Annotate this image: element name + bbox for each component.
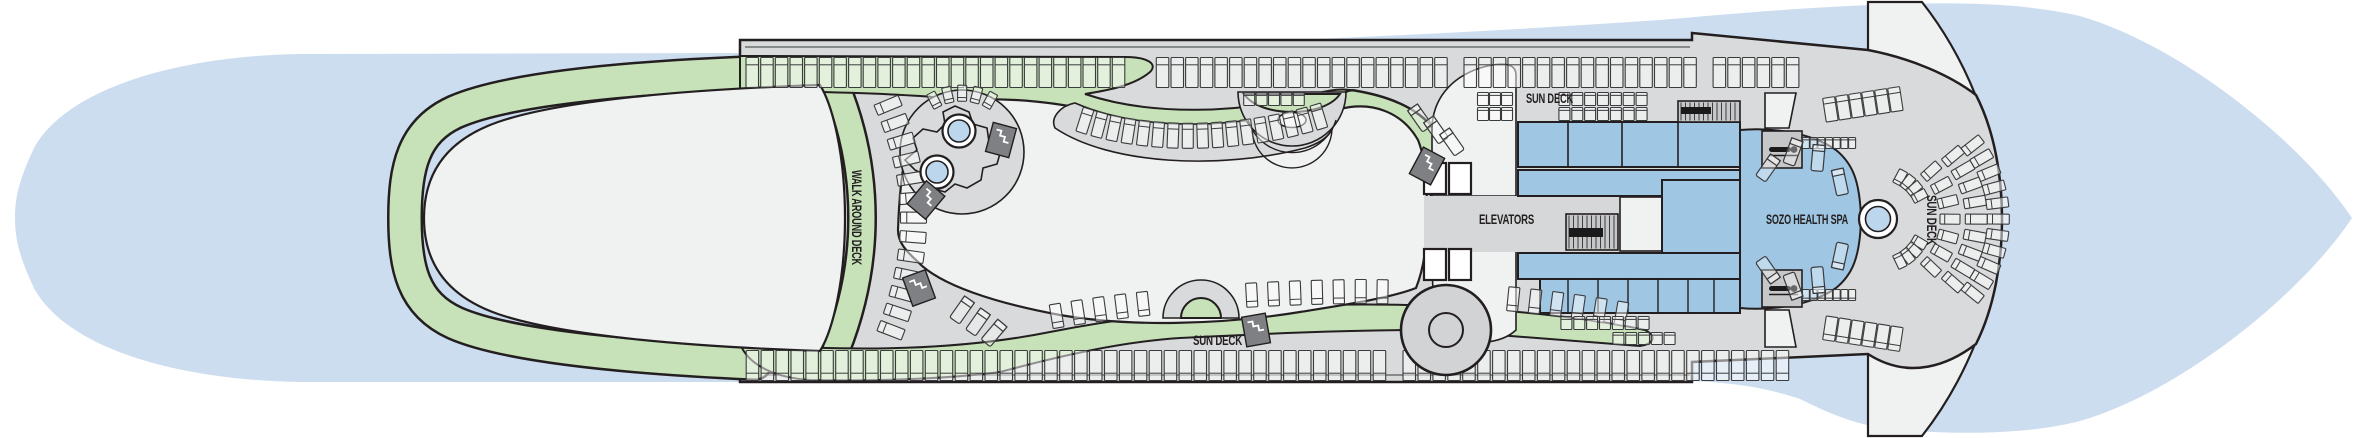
deck-chair (1567, 58, 1580, 88)
deck-chair (1328, 351, 1341, 381)
deck-chair (1211, 122, 1224, 148)
deck-chair (1596, 58, 1609, 88)
deck-chair (1986, 197, 2009, 210)
deck-chair (1642, 351, 1655, 381)
deck-chair (951, 58, 964, 88)
deck-chair (1134, 351, 1147, 381)
deck-chair (1377, 280, 1388, 304)
deck-chair (1528, 289, 1542, 314)
deck-chair (1115, 294, 1129, 319)
deck-chair (1507, 287, 1520, 312)
hot-tub-icon (943, 115, 976, 148)
deck-chair (1244, 58, 1257, 88)
deck-chair (1000, 351, 1013, 381)
deck-chair (1224, 351, 1237, 381)
deck-chair (1561, 317, 1572, 330)
deck-plan-page: SUN DECK SUN DECK ELEVATORS SOZO HEALTH … (0, 0, 2362, 438)
deck-chair (1717, 351, 1730, 381)
deck-chair (1269, 351, 1282, 381)
deck-chair (1284, 351, 1297, 381)
deck-chair (1664, 333, 1675, 345)
label-elevators: ELEVATORS (1479, 212, 1534, 227)
deck-chair (1826, 290, 1833, 301)
deck-chair (1625, 58, 1638, 88)
deck-chair (1687, 351, 1700, 381)
deck-chair (776, 351, 789, 381)
deck-chair (1149, 351, 1162, 381)
deck-chair (1493, 58, 1506, 88)
deck-chair (819, 58, 832, 88)
deck-chair (1391, 58, 1404, 88)
deck-chair (1303, 58, 1316, 88)
deck-chair (1567, 351, 1580, 381)
deck-chair (1239, 351, 1252, 381)
deck-chair (1672, 351, 1685, 381)
deck-chair (836, 351, 849, 381)
deck-chair (1841, 138, 1848, 149)
deck-chair (791, 351, 804, 381)
deck-chair (1508, 351, 1521, 381)
staircase-top (1678, 101, 1740, 122)
deck-chair (1802, 290, 1809, 301)
deck-chair (1684, 58, 1697, 88)
deck-chair (1288, 58, 1301, 88)
deck-chair (1478, 108, 1489, 121)
pool-icon (1859, 200, 1897, 238)
deck-chair (1600, 317, 1611, 330)
deck-chair (1587, 317, 1598, 330)
label-sun-deck-bottom: SUN DECK (1193, 333, 1242, 348)
deck-chair (1611, 58, 1624, 88)
deck-chair (1405, 58, 1418, 88)
label-spa: SOZO HEALTH SPA (1766, 212, 1848, 227)
spa-lounger (1811, 145, 1825, 172)
deck-chair (1833, 138, 1840, 149)
deck-chair (1597, 351, 1610, 381)
deck-chair (1581, 58, 1594, 88)
deck-chair (1318, 58, 1331, 88)
deck-chair (1572, 93, 1583, 106)
deck-chair (1293, 93, 1304, 106)
deck-chair (995, 58, 1008, 88)
deck-chair (1311, 280, 1323, 304)
deck-chair (1098, 58, 1111, 88)
deck-chair (1083, 58, 1096, 88)
deck-chair (1833, 290, 1840, 301)
stairs-icon (1242, 313, 1271, 347)
deck-chair (1987, 214, 2009, 224)
deck-chair (1537, 58, 1550, 88)
deck-chair (1702, 351, 1715, 381)
deck-chair (1230, 58, 1243, 88)
elevator-car (1449, 249, 1471, 280)
deck-chair (1200, 58, 1213, 88)
deck-chair (893, 58, 906, 88)
deck-chair (1435, 58, 1448, 88)
label-walk-around-deck: WALK AROUND DECK (849, 170, 864, 265)
deck-chair (1598, 108, 1609, 121)
deck-chair (1479, 58, 1492, 88)
deck-chair (1639, 333, 1650, 345)
deck-chair (775, 58, 788, 88)
deck-chair (806, 351, 819, 381)
deck-chair (1333, 280, 1344, 304)
deck-chair (1194, 351, 1207, 381)
deck-chair (1585, 108, 1596, 121)
deck-chair (985, 351, 998, 381)
deck-chair (1493, 351, 1506, 381)
deck-chair (1030, 351, 1043, 381)
deck-chair (981, 58, 994, 88)
deck-chair (821, 351, 834, 381)
deck-chair (1655, 58, 1668, 88)
deck-chair (896, 351, 909, 381)
deck-chair (805, 58, 818, 88)
deck-chair (1039, 58, 1052, 88)
deck-chair (1626, 333, 1637, 345)
deck-chair (1669, 58, 1682, 88)
deck-chair (1332, 58, 1345, 88)
deck-chair (970, 351, 983, 381)
deck-chair (1550, 291, 1564, 316)
deck-chair (910, 351, 923, 381)
deck-chair (1523, 58, 1536, 88)
deck-chair (1225, 121, 1238, 147)
deck-chair (1627, 351, 1640, 381)
deck-chair (1355, 279, 1366, 303)
deck-chair (1559, 108, 1570, 121)
deck-chair (937, 58, 950, 88)
deck-chair (1613, 333, 1624, 345)
deck-chair (1640, 58, 1653, 88)
deck-chair (1612, 351, 1625, 381)
deck-chair (1197, 123, 1209, 148)
deck-chair (1299, 351, 1312, 381)
deck-chair (1156, 58, 1169, 88)
deck-chair (761, 58, 774, 88)
deck-chair (1267, 282, 1279, 306)
deck-chair (1182, 123, 1193, 148)
deck-chair (1746, 351, 1759, 381)
deck-chair (1732, 351, 1745, 381)
deck-chair (1636, 108, 1647, 121)
deck-chair (866, 351, 879, 381)
label-sun-deck-bow: SUN DECK (1924, 195, 1939, 245)
deck-chair (1728, 58, 1741, 88)
elevator-car (1449, 163, 1471, 194)
deck-chair (940, 351, 953, 381)
deck-chair (1742, 58, 1755, 88)
deck-chair (899, 231, 926, 244)
deck-chair (1090, 351, 1103, 381)
deck-chair (1314, 351, 1327, 381)
label-sun-deck-top: SUN DECK (1526, 91, 1573, 106)
deck-chair (1636, 93, 1647, 106)
deck-chair (1246, 283, 1258, 308)
deck-chair (1623, 108, 1634, 121)
deck-chair (1610, 93, 1621, 106)
deck-chair (1757, 58, 1770, 88)
deck-chair (1478, 93, 1489, 106)
deck-chair (849, 58, 862, 88)
deck-chair (1281, 93, 1292, 106)
deck-chair (1105, 351, 1118, 381)
deck-chair (1289, 281, 1301, 305)
deck-chair (1965, 214, 1987, 224)
deck-chair (1940, 214, 1960, 224)
deck-chair (834, 58, 847, 88)
deck-chair (1651, 333, 1662, 345)
deck-chair (1713, 58, 1726, 88)
deck-chair (878, 58, 891, 88)
deck-chair (1826, 138, 1833, 149)
deck-chair (1610, 108, 1621, 121)
deck-chair (1508, 58, 1521, 88)
deck-chair (1060, 351, 1073, 381)
deck-chair (1623, 93, 1634, 106)
deck-chair (907, 58, 920, 88)
room-white (1620, 197, 1662, 251)
elevator-car (1424, 249, 1446, 280)
deck-chair (1343, 351, 1356, 381)
deck-chair (1179, 351, 1192, 381)
deck-chair (1259, 58, 1272, 88)
deck-chair (746, 58, 759, 88)
deck-chair (746, 351, 759, 381)
deck-chair (1572, 108, 1583, 121)
deck-chair (863, 58, 876, 88)
deck-chair (1802, 138, 1809, 149)
deck-chair (1112, 58, 1125, 88)
cabin-row-lower (1540, 279, 1740, 313)
deck-chair (1075, 351, 1088, 381)
deck-chair (1254, 351, 1267, 381)
deck-chair (1376, 58, 1389, 88)
spa-lounger (1811, 267, 1825, 294)
deck-chair (1136, 291, 1150, 316)
deck-chair (1657, 351, 1670, 381)
deck-chair (1015, 351, 1028, 381)
deck-chair (1171, 58, 1184, 88)
deck-chair (1361, 58, 1374, 88)
deck-chair (761, 351, 774, 381)
deck-chair (966, 58, 979, 88)
deck-chair (1244, 93, 1255, 106)
deck-chair (1490, 108, 1501, 121)
deck-chair (1849, 138, 1856, 149)
deck-chair (1638, 317, 1649, 330)
deck-chair (1841, 290, 1848, 301)
deck-chair (851, 351, 864, 381)
deck-chair (1358, 351, 1371, 381)
deck-chair (1256, 93, 1267, 106)
deck-chair (1164, 351, 1177, 381)
deck-chair (1054, 58, 1067, 88)
deck-chair (1152, 122, 1165, 148)
cabin-row-upper (1518, 122, 1740, 167)
deck-plan: SUN DECK SUN DECK ELEVATORS SOZO HEALTH … (0, 0, 2362, 438)
deck-chair (1209, 351, 1222, 381)
deck-chair (1464, 58, 1477, 88)
deck-chair (1598, 93, 1609, 106)
deck-chair (1490, 93, 1501, 106)
deck-chair (1523, 351, 1536, 381)
deck-chair (1625, 317, 1636, 330)
deck-chair (1612, 317, 1623, 330)
deck-chair (1420, 58, 1433, 88)
deck-chair (1574, 317, 1585, 330)
staircase-mid (1566, 214, 1618, 250)
deck-chair (1537, 351, 1550, 381)
deck-chair (1582, 351, 1595, 381)
deck-chair (1552, 351, 1565, 381)
deck-chair (1119, 351, 1132, 381)
deck-chair (1186, 58, 1199, 88)
deck-chair (1068, 58, 1081, 88)
deck-chair (1585, 93, 1596, 106)
deck-chair (922, 58, 935, 88)
deck-chair (1502, 93, 1513, 106)
deck-chair (1274, 58, 1287, 88)
deck-chair (1849, 290, 1856, 301)
deck-chair (881, 351, 894, 381)
deck-chair (1347, 58, 1360, 88)
deck-chair (1024, 58, 1037, 88)
deck-chair (958, 85, 967, 101)
deck-chair (955, 351, 968, 381)
deck-chair (1215, 58, 1228, 88)
deck-chair (1772, 58, 1785, 88)
deck-chair (925, 351, 938, 381)
deck-chair (1786, 58, 1799, 88)
deck-chair (1136, 120, 1150, 146)
deck-chair (1761, 351, 1774, 381)
cabin-strip-lower (1518, 253, 1740, 279)
deck-chair (1552, 58, 1565, 88)
deck-chair (790, 58, 803, 88)
deck-chair (1502, 108, 1513, 121)
deck-chair (1373, 351, 1386, 381)
deck-chair (1269, 93, 1280, 106)
deck-chair (1010, 58, 1023, 88)
funnel-icon (1401, 285, 1491, 375)
deck-chair (1045, 351, 1058, 381)
deck-chair (1167, 123, 1179, 148)
deck-chair (1776, 351, 1789, 381)
